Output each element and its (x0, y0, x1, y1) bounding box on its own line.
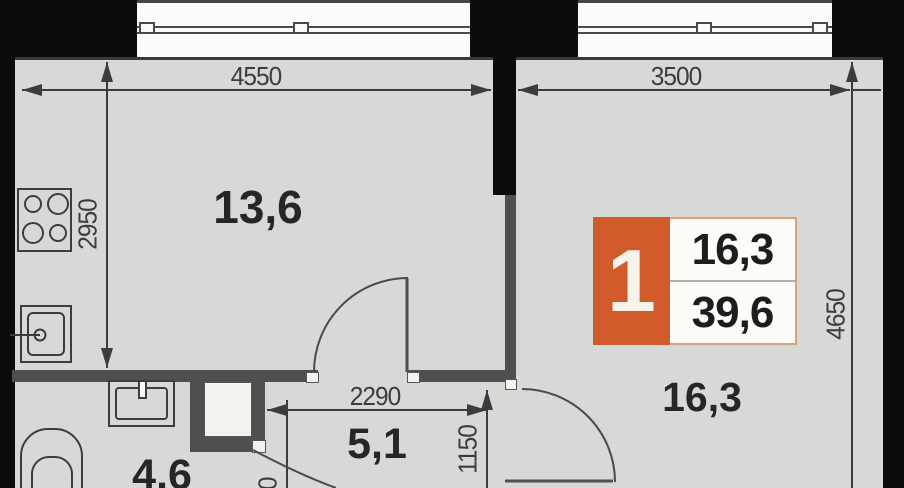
dim-text-4650: 4650 (821, 263, 852, 366)
unit-number: 1 (593, 217, 670, 345)
floor-plan: 4550 3500 2950 4650 2290 1150 650 13,6 1… (0, 0, 904, 488)
room-area-bedroom: 16,3 (602, 374, 802, 421)
door-swing-arc (314, 278, 408, 372)
unit-living-area: 16,3 (670, 219, 795, 282)
room-area-living-kitchen: 13,6 (158, 180, 358, 234)
unit-badge: 1 16,3 39,6 (593, 217, 797, 345)
room-area-bathroom: 4,6 (62, 451, 262, 488)
stove-icon (17, 188, 72, 252)
dim-text-3500: 3500 (582, 61, 770, 92)
kitchen-sink-icon (20, 305, 72, 363)
dim-text-4550: 4550 (162, 61, 350, 92)
dim-text-2950: 2950 (73, 173, 104, 276)
room-area-hallway: 5,1 (277, 420, 477, 469)
unit-total-area: 39,6 (670, 282, 795, 343)
dim-text-2290: 2290 (281, 381, 469, 412)
washbasin-icon (108, 380, 175, 427)
